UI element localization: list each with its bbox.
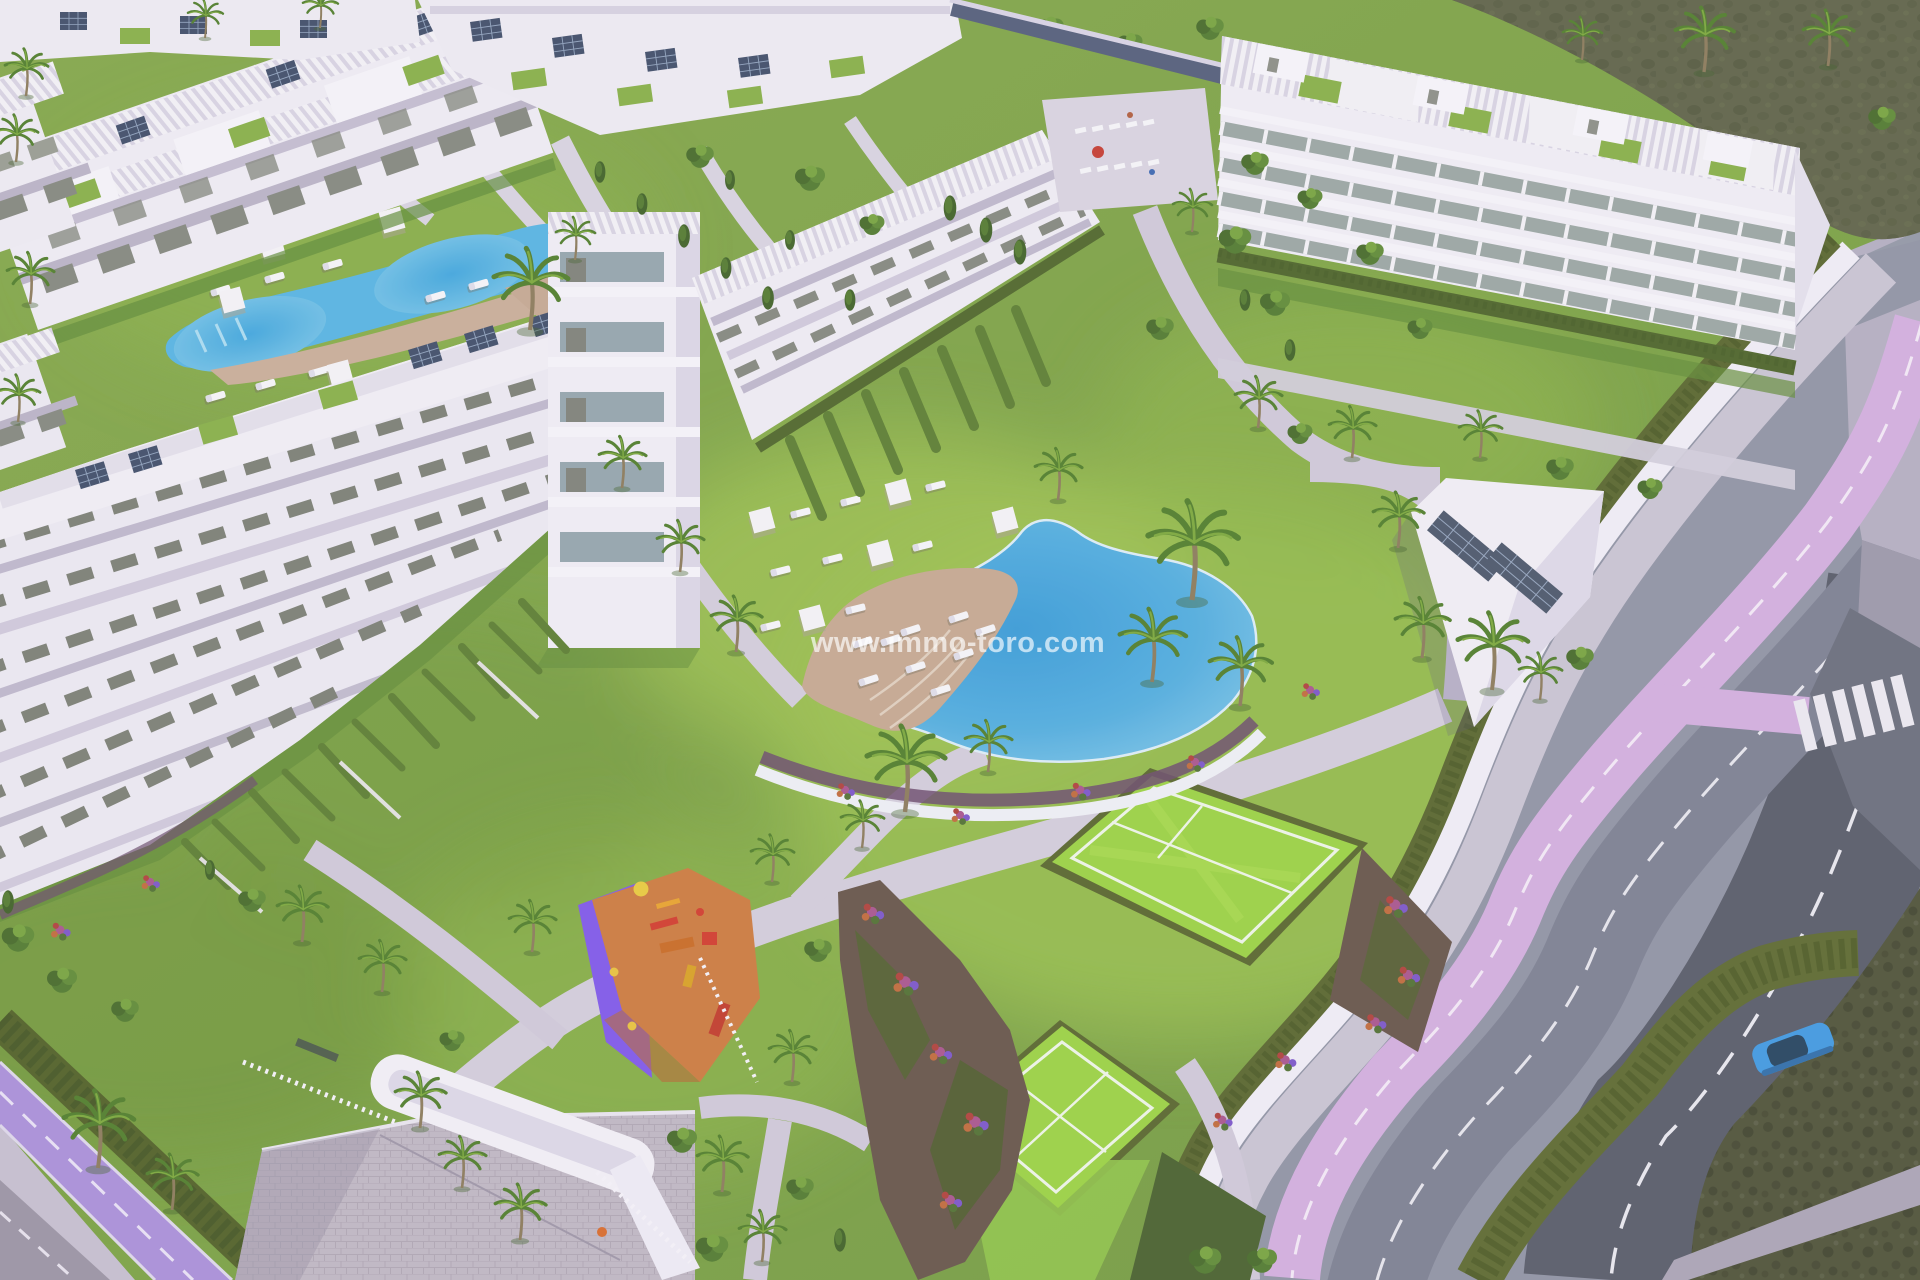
svg-text:www.immo-toro.com: www.immo-toro.com — [810, 627, 1105, 659]
